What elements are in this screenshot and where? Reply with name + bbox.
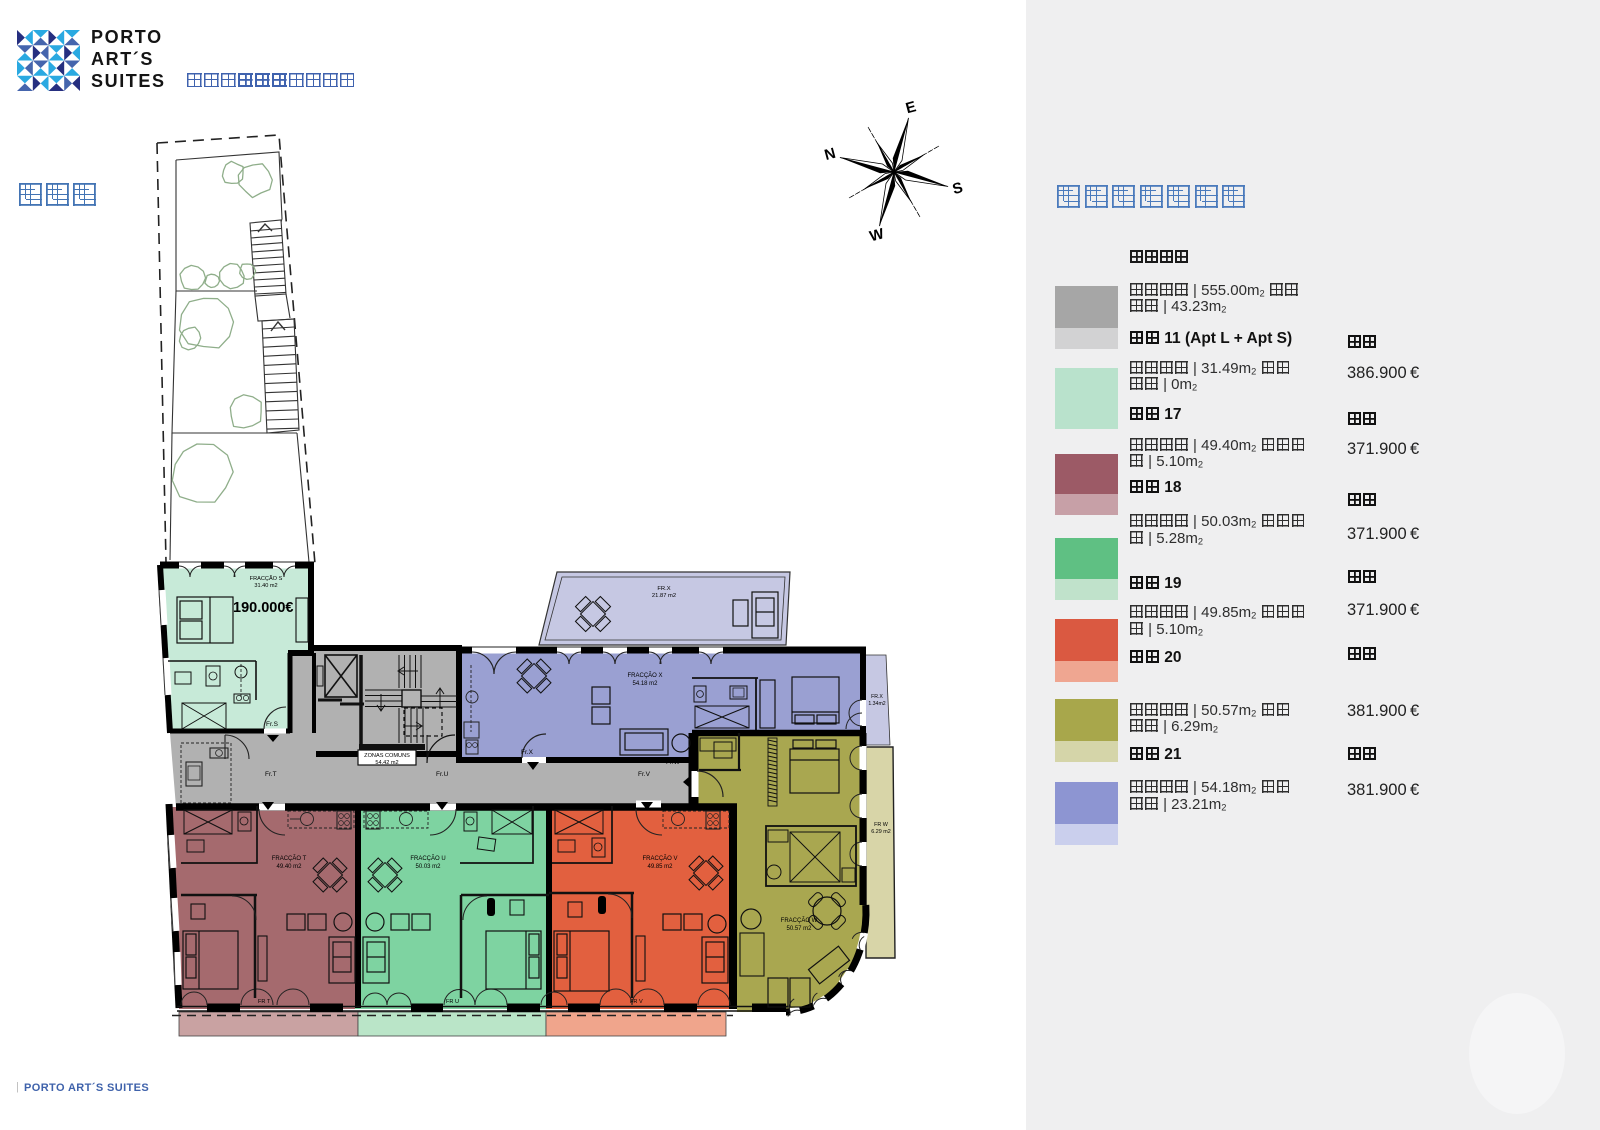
svg-text:50.03 m2: 50.03 m2	[415, 864, 441, 870]
svg-text:49.85 m2: 49.85 m2	[647, 864, 673, 870]
svg-text:FRACÇÃO X: FRACÇÃO X	[627, 672, 662, 679]
svg-text:FRACÇÃO W: FRACÇÃO W	[781, 917, 818, 924]
svg-text:54.18 m2: 54.18 m2	[632, 681, 658, 687]
svg-text:FR.X: FR.X	[657, 586, 670, 592]
svg-text:190.000€: 190.000€	[233, 600, 293, 616]
svg-text:Fr.U: Fr.U	[436, 771, 449, 778]
svg-text:50.57 m2: 50.57 m2	[786, 926, 812, 932]
svg-text:N: N	[823, 145, 838, 164]
svg-text:FRACÇÃO S: FRACÇÃO S	[250, 575, 283, 582]
svg-text:FR T: FR T	[258, 999, 271, 1005]
svg-text:E: E	[904, 98, 918, 117]
svg-text:ZONAS COMUNS: ZONAS COMUNS	[364, 753, 410, 759]
svg-text:49.40 m2: 49.40 m2	[276, 864, 302, 870]
svg-text:Fr.S: Fr.S	[266, 721, 279, 728]
svg-text:1.34m2: 1.34m2	[868, 701, 885, 707]
svg-text:FR.X: FR.X	[871, 694, 883, 700]
svg-text:FR W: FR W	[874, 822, 889, 828]
svg-text:FR U: FR U	[446, 999, 459, 1005]
svg-text:FRACÇÃO T: FRACÇÃO T	[272, 855, 307, 862]
svg-text:S: S	[951, 179, 965, 198]
svg-text:Fr.V: Fr.V	[638, 771, 651, 778]
svg-text:W: W	[868, 225, 887, 245]
svg-text:Fr.W: Fr.W	[666, 759, 681, 766]
svg-text:21.87 m2: 21.87 m2	[652, 593, 676, 599]
svg-text:FRACÇÃO U: FRACÇÃO U	[410, 855, 445, 862]
svg-text:FRACÇÃO V: FRACÇÃO V	[642, 855, 677, 862]
svg-text:6.29 m2: 6.29 m2	[871, 829, 890, 835]
svg-text:Fr.X: Fr.X	[521, 749, 534, 756]
svg-text:31.40 m2: 31.40 m2	[254, 583, 277, 589]
svg-text:Fr.T: Fr.T	[265, 771, 277, 778]
svg-text:54.42 m2: 54.42 m2	[375, 760, 398, 766]
svg-text:FR V: FR V	[630, 999, 643, 1005]
